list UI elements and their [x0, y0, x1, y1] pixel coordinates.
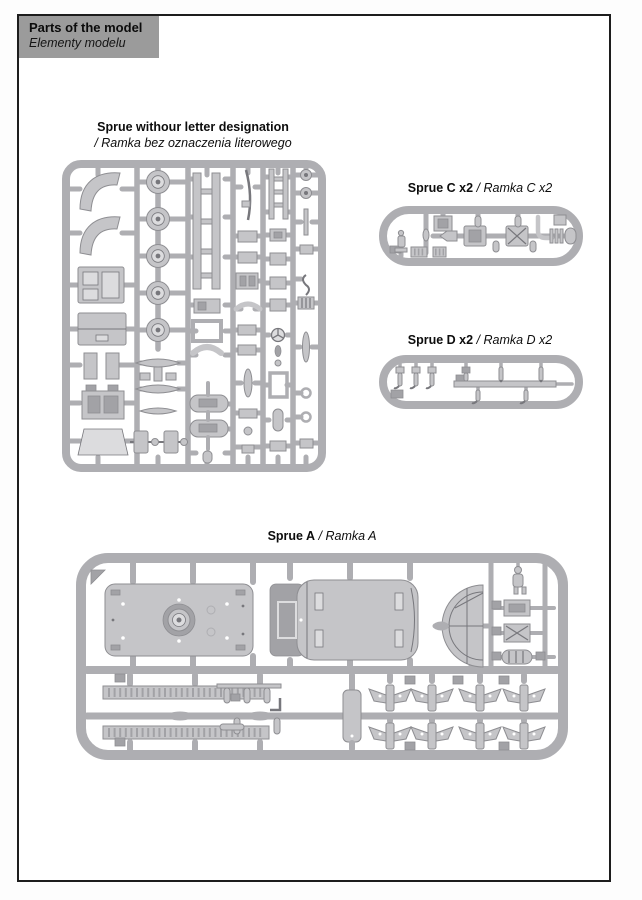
sprue-d-subtitle: / Ramka D x2 [477, 333, 553, 347]
sprue-c-subtitle: / Ramka C x2 [477, 181, 553, 195]
figure-part [513, 567, 526, 595]
sprue-a-title: Sprue A [268, 529, 315, 543]
sprue-no-letter-diagram [60, 157, 328, 475]
tank-body-panel [270, 580, 418, 660]
cab-part [78, 267, 124, 303]
windshield-part [78, 429, 128, 455]
page-title: Parts of the model [29, 20, 151, 36]
radiator-part [82, 385, 124, 419]
sprue-a-subtitle: / Ramka A [319, 529, 377, 543]
sprue-c-title: Sprue C x2 [408, 181, 473, 195]
sprue-c-parts [390, 215, 576, 257]
bracket-parts [369, 672, 545, 750]
chassis-rail-parts [193, 173, 220, 289]
sprue-d-title: Sprue D x2 [408, 333, 473, 347]
mercedes-star-part [272, 329, 285, 367]
dome-part [433, 585, 483, 667]
page-subtitle: Elementy modelu [29, 36, 151, 52]
hood-part [78, 313, 126, 345]
corner-notch [91, 570, 105, 584]
sprue-no-letter-title: Sprue withour letter designation [38, 119, 348, 135]
right-column-parts [491, 600, 554, 664]
sprue-no-letter-caption: Sprue withour letter designation / Ramka… [38, 119, 348, 152]
column5-lower-parts [270, 373, 287, 451]
fender-parts [80, 173, 120, 255]
sprue-c-diagram [378, 205, 584, 267]
sprue-a-diagram [75, 548, 569, 770]
sprue-d-parts [391, 367, 556, 403]
ladder-part [269, 169, 288, 219]
page-header: Parts of the model Elementy modelu [19, 16, 159, 58]
sprue-c-caption: Sprue C x2 / Ramka C x2 [370, 180, 590, 196]
centre-small-parts [190, 299, 228, 463]
door-parts [84, 353, 119, 379]
fuel-tank-part [343, 672, 361, 752]
tank-floor-panel [105, 584, 253, 656]
runner-bulge [247, 712, 273, 721]
leaf-spring-parts [136, 359, 180, 414]
sprue-no-letter-subtitle: / Ramka bez oznaczenia literowego [38, 135, 348, 151]
column5-small-parts [270, 229, 286, 311]
scanned-page: Parts of the model Elementy modelu Sprue… [0, 0, 642, 900]
sprue-a-caption: Sprue A / Ramka A [75, 528, 569, 544]
sprue-d-diagram [378, 354, 584, 410]
runner-bulge [167, 712, 193, 721]
right-strip-parts [298, 170, 314, 449]
sprue-d-caption: Sprue D x2 / Ramka D x2 [370, 332, 590, 348]
small-axle-parts [130, 431, 188, 453]
